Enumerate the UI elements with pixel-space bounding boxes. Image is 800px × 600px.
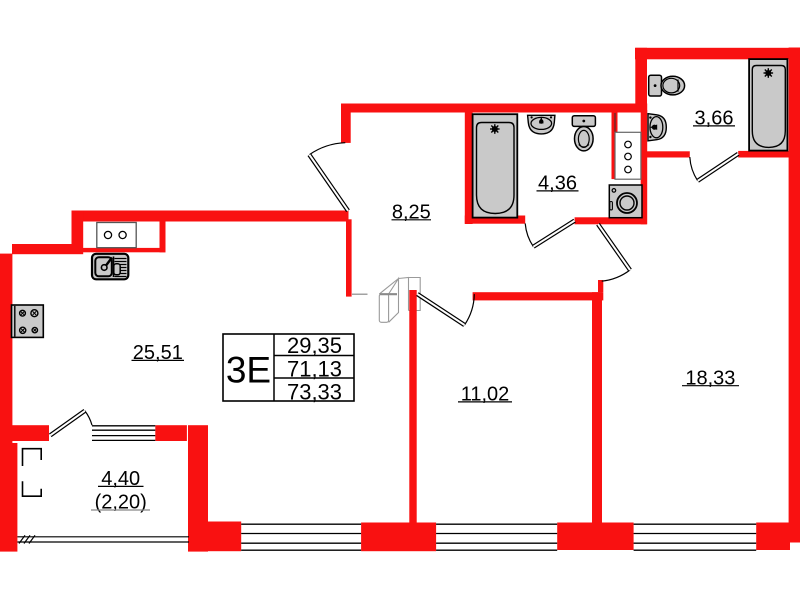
svg-text:71,13: 71,13 [287, 357, 342, 382]
svg-text:73,33: 73,33 [287, 380, 342, 405]
svg-text:3Е: 3Е [226, 350, 271, 391]
svg-text:29,35: 29,35 [287, 333, 342, 358]
